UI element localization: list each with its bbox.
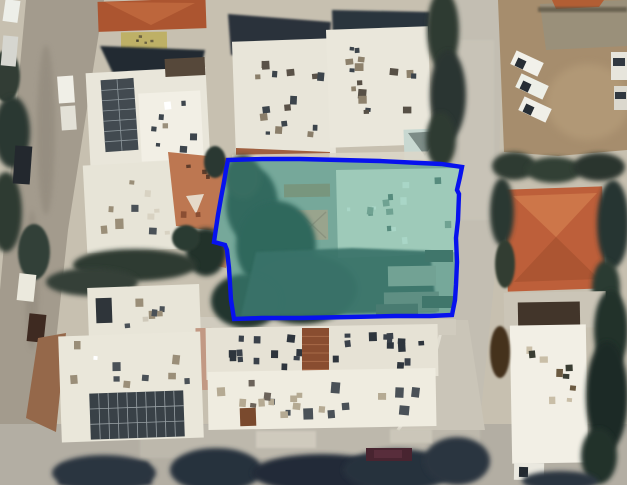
car-bottom-right-glass <box>519 467 528 477</box>
car-dark-mid <box>96 298 113 324</box>
parcel-highlight-polygon[interactable] <box>214 159 462 319</box>
car-maroon-top <box>374 450 402 458</box>
car-top-left-2 <box>1 35 19 66</box>
car-right-edge-1-glass <box>613 58 625 66</box>
tree-row-right-3 <box>573 153 625 181</box>
tree-salmon-2 <box>172 225 200 251</box>
car-mid-left <box>17 273 37 302</box>
tan-roof-top-left <box>165 57 206 77</box>
tree-orange-house-left-2 <box>495 240 515 288</box>
car-right-edge-2-glass <box>615 92 626 99</box>
tree-white-house-left <box>490 326 510 378</box>
road-light-patch-2 <box>390 429 432 443</box>
car-parked-col-2 <box>60 106 77 131</box>
satellite-image <box>0 0 627 485</box>
terrace-top-left <box>138 90 203 161</box>
car-top-left-1 <box>3 0 21 23</box>
tree-orange-house-left <box>490 178 514 246</box>
road-right-light <box>460 40 494 220</box>
scene-root <box>0 0 627 485</box>
tree-row-right-2 <box>526 157 582 183</box>
road-light-patch-1 <box>256 431 316 448</box>
tree-parcel-corner <box>204 146 226 178</box>
apartment-b-roof <box>232 38 336 159</box>
tree-left-edge-4 <box>18 224 50 280</box>
yellow-sign <box>121 32 167 50</box>
tree-shadow-bottom-6 <box>424 437 490 485</box>
bottom-brown-box <box>240 408 257 427</box>
satellite-map-view[interactable] <box>0 0 627 485</box>
dirt-dark-line <box>538 7 627 12</box>
car-parked-col-1 <box>57 75 75 103</box>
car-dark-left <box>13 145 33 184</box>
tree-roadside-3 <box>426 112 456 168</box>
road-left-streak <box>37 45 55 215</box>
white-house-roof <box>510 324 588 463</box>
